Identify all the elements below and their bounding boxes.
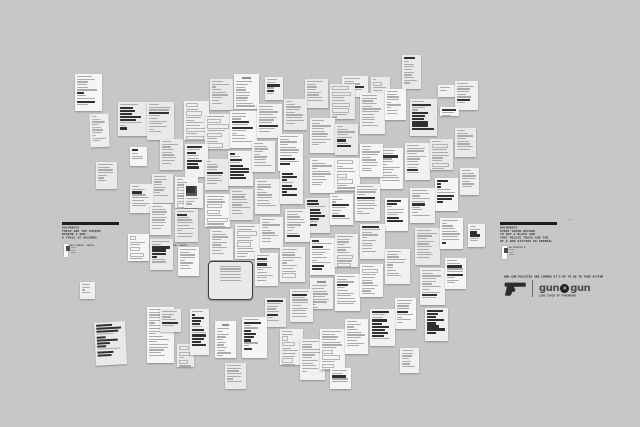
logo-word-right: gun [570,283,590,294]
document-dense [190,309,209,355]
document-text [360,224,385,259]
document-text [89,114,109,148]
id-card-caption: NO 2700TYPE B [509,246,530,251]
document-text [278,134,303,171]
document-dense [118,102,147,136]
document-text [255,179,280,214]
document-text [290,289,313,322]
id-card-group: NO 2700TYPE B [502,246,569,259]
campaign-headline: NEW GUN POLICIES ARE COMING IT'S UP TO U… [504,275,596,278]
document-text [152,174,173,203]
document-text [395,298,416,329]
document-dense [242,317,267,358]
document-dense [370,309,395,346]
micro-line: THESE ARE THE PAPERS [62,229,122,232]
document-text [255,253,278,286]
document-text [330,194,353,225]
document-text [305,79,328,108]
document-form [205,114,230,149]
id-card [64,244,68,257]
document-text [360,144,383,177]
document-collage [0,0,640,427]
document-text [178,247,199,276]
document-text [405,143,430,180]
micro-line: OF A GUN STATION IN GENERAL [500,239,560,242]
micro-line: DOCUMENTS [500,226,560,229]
document-receipt [130,147,147,166]
document-cert [208,261,253,300]
document-text [440,218,463,249]
document-text [260,217,283,248]
document-form [280,247,305,282]
document-form [430,139,453,170]
document-dense [335,124,358,155]
micro-line: DOCUMENTS [62,226,122,229]
handgun-icon [504,281,526,297]
document-text [385,89,406,120]
id-photo [504,248,508,253]
document-sm [265,77,283,100]
logo-sub-tagline: LONG CHAIN OF PAPERWORK [539,294,625,297]
document-sm [468,224,485,247]
document-text [210,229,233,260]
document-text [210,79,233,110]
document-text [257,104,282,138]
document-form [284,99,307,130]
left-divider-bar [62,222,119,225]
poster: DOCUMENTSTHESE ARE THE PAPERSBEHIND A GU… [0,0,640,427]
document-text [445,258,466,289]
id-photo [66,246,70,251]
document-text [252,141,275,172]
document-dense [228,151,253,186]
document-sm [330,368,351,389]
document-text [335,274,360,311]
right-panel-card: NO 2700TYPE B [502,246,569,259]
document-label [440,107,459,116]
document-text [400,348,419,373]
document-text [360,93,385,134]
document-text [380,148,403,189]
document-dense [435,178,458,211]
document-dense [94,321,127,366]
right-panel-text: DOCUMENTSEVERY PAPER RECORDTO BUY A BLAC… [500,226,560,243]
document-text [310,118,335,153]
document-dense [150,239,173,270]
document-text [225,363,246,389]
document-text [160,309,181,332]
right-divider-bar [500,222,557,225]
document-form [335,234,358,267]
document-letter [310,278,333,309]
document-text [455,128,476,157]
logo-divider [532,280,533,297]
document-text [147,102,174,140]
logo-x-icon: ✕ [560,284,569,293]
document-text [460,168,479,195]
document-text [310,158,335,193]
document-text [345,319,368,354]
gun-photo [186,186,197,196]
document-text [385,249,410,284]
document-sm [438,85,455,97]
logo-wordmark: gun ✕ gun LONG CHAIN OF PAPERWORK [539,283,590,294]
document-text [230,189,253,220]
document-text [160,139,183,170]
left-panel-text: DOCUMENTSTHESE ARE THE PAPERSBEHIND A GU… [62,226,122,239]
document-text [175,209,198,242]
document-form [330,84,355,119]
document-form [205,194,230,227]
document-form [360,264,383,297]
document-dense [410,99,437,136]
micro-line: EVERY PAPER RECORD [500,229,560,232]
document-letter [215,321,236,358]
document-text [285,209,310,242]
document-photo [184,183,203,208]
document-text [150,204,171,235]
id-card-caption: REG 2700CAL .381971 [70,244,97,249]
document-text [455,81,478,110]
corner-mark: -- [568,218,572,222]
document-text [75,74,102,111]
micro-line: THAT POLICE TRACE AND THE [500,236,560,239]
document-text [96,162,117,189]
document-receipt [402,55,421,89]
id-card [502,246,507,259]
micro-line: 1971 [89,244,94,246]
micro-line: A TRAIL OF RECORDS [62,236,122,239]
left-info-panel: DOCUMENTSTHESE ARE THE PAPERSBEHIND A GU… [62,222,122,262]
document-letter [234,74,259,109]
document-form [320,329,345,370]
right-info-panel: -- DOCUMENTSEVERY PAPER RECORDTO BUY A B… [500,222,560,262]
brand-lockup: gun ✕ gun LONG CHAIN OF PAPERWORK [504,280,590,297]
document-form [128,234,149,261]
document-text [205,159,228,190]
micro-line: TO BUY A BLACK GUN [500,232,560,235]
document-dense [280,171,303,204]
document-dense [385,198,408,231]
document-dense [425,308,448,341]
logo-word-left: gun [539,283,559,294]
document-form [415,228,440,265]
document-text [310,238,335,275]
document-text [355,184,380,221]
document-text [265,298,286,327]
micro-line: REG 2700 [70,244,80,246]
document-text [410,188,435,223]
document-sm [80,282,95,299]
micro-line: TYPE B [518,246,526,248]
document-text [420,268,445,305]
